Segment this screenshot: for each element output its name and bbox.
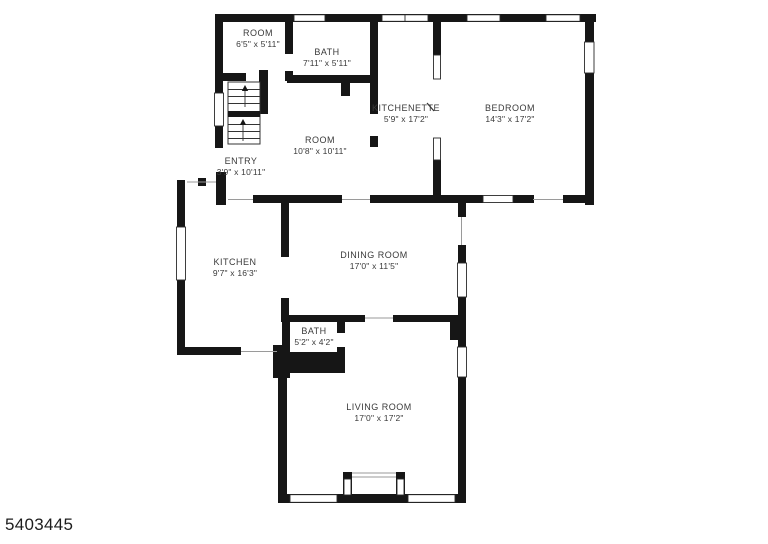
staircase xyxy=(228,82,260,144)
opening-lines xyxy=(187,182,563,477)
door-swing-icon xyxy=(427,103,434,111)
floorplan-page: ROOM6'5" x 5'11"BATH7'11" x 5'11"KITCHEN… xyxy=(0,0,768,544)
listing-id: 5403445 xyxy=(5,515,73,535)
floorplan-drawing xyxy=(0,0,768,544)
